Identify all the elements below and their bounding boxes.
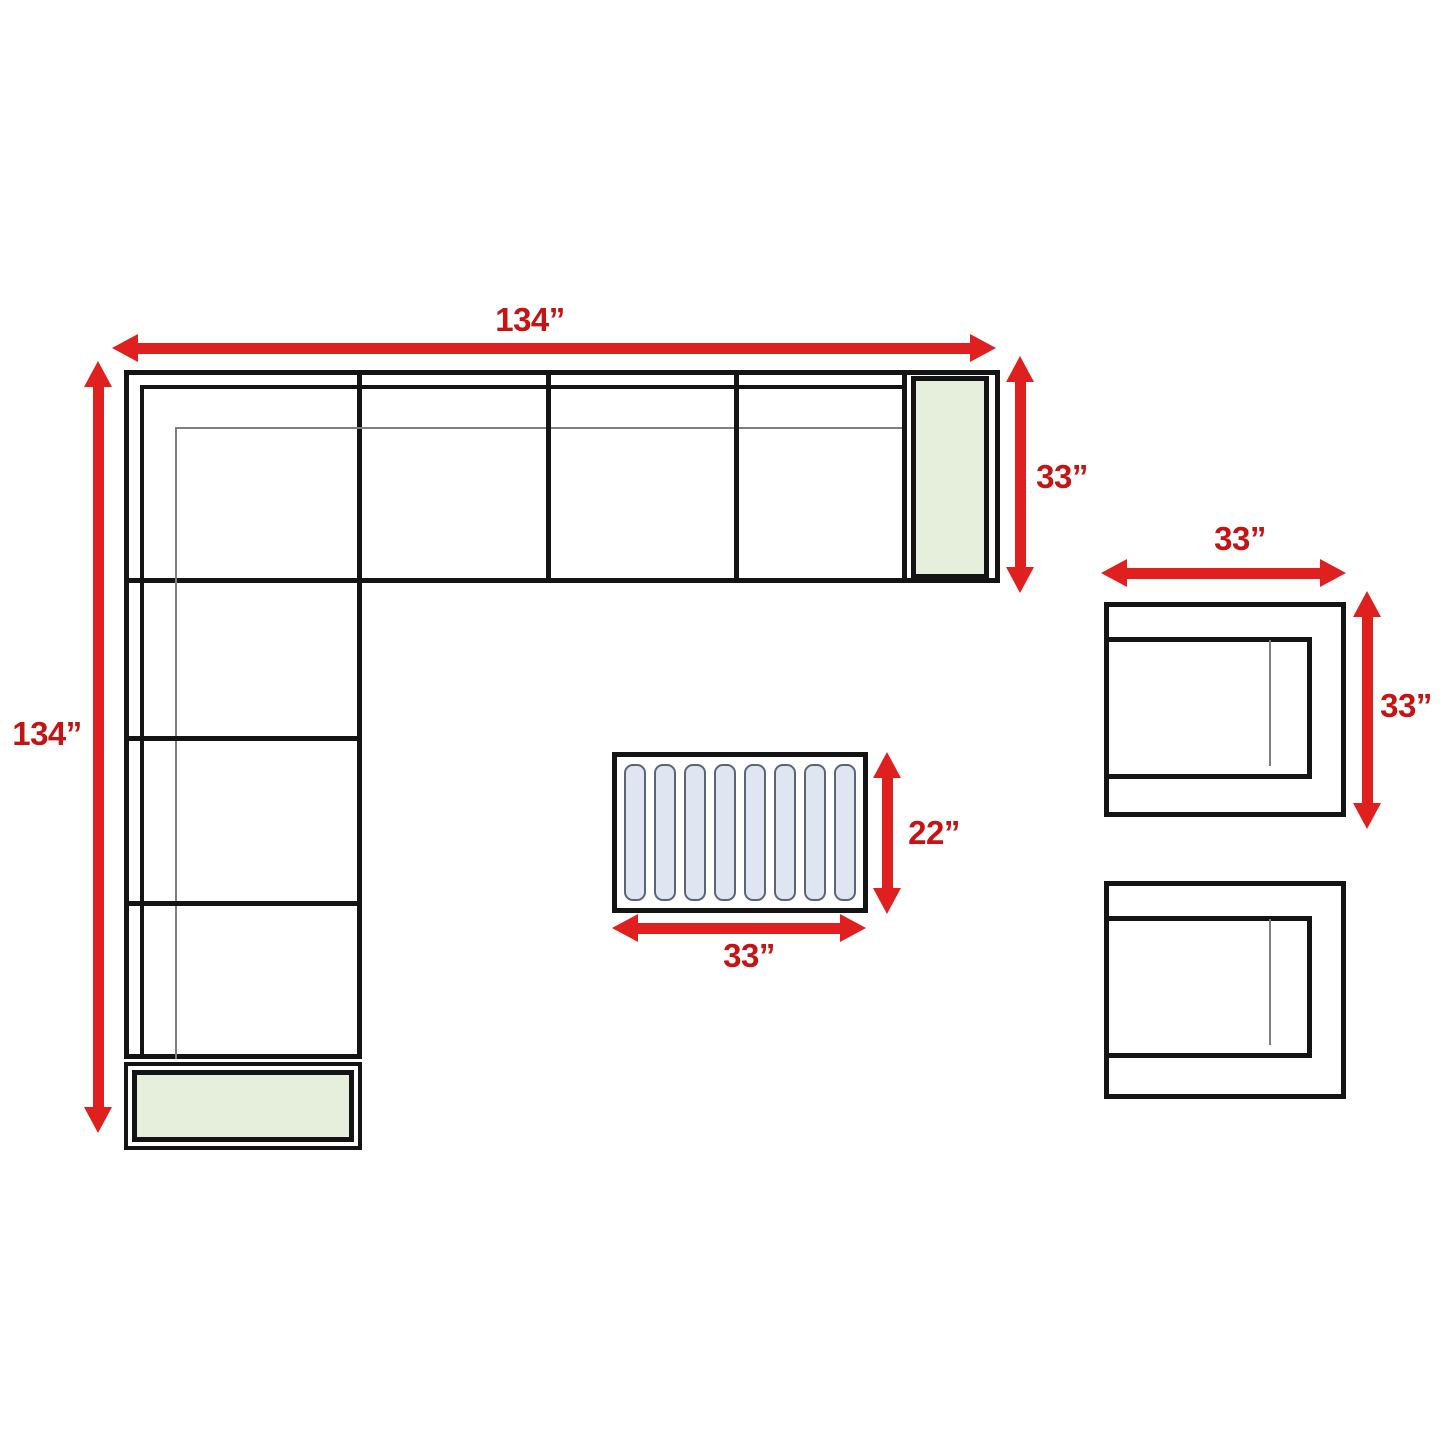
sofa-backrest-line-left xyxy=(140,385,144,1059)
dim-label-sofa-depth: 134” xyxy=(12,715,82,753)
chair-seat xyxy=(1104,916,1312,1058)
dim-label-table-width: 33” xyxy=(723,937,775,975)
arrow-head-down-icon xyxy=(1006,567,1034,593)
arrow-head-right-icon xyxy=(840,914,866,942)
chair-seat-crease xyxy=(1269,919,1271,1045)
table-slat xyxy=(774,764,796,901)
table-slat xyxy=(804,764,826,901)
arrow-head-right-icon xyxy=(1320,559,1346,587)
arrow-shaft xyxy=(1123,568,1324,579)
ottoman-cushion xyxy=(132,1070,354,1142)
dim-arrow-chair-width xyxy=(1101,559,1346,588)
arrow-shaft xyxy=(882,774,893,892)
arrow-head-right-icon xyxy=(970,334,996,362)
ottoman-frame xyxy=(124,1062,362,1150)
sofa-seat-divider xyxy=(546,370,551,583)
arrow-shaft xyxy=(93,383,104,1111)
table-slat xyxy=(834,764,856,901)
sofa-backrest-line-top xyxy=(142,385,905,389)
coffee-table xyxy=(612,752,868,913)
lounge-chair-bottom xyxy=(1104,881,1346,1099)
dim-label-sofa-width: 134” xyxy=(495,301,565,339)
sofa-arm-cushion xyxy=(911,376,989,579)
table-slat xyxy=(624,764,646,901)
arrow-shaft xyxy=(634,923,844,934)
dim-label-chair-width: 33” xyxy=(1214,520,1266,558)
table-slat xyxy=(744,764,766,901)
arrow-shaft xyxy=(1015,378,1026,571)
furniture-dimension-diagram: 134” 134” 33” 33” 33” 22” 33” xyxy=(0,0,1445,1445)
arrow-shaft xyxy=(134,343,974,354)
sectional-left-section xyxy=(124,370,362,1059)
sofa-seat-divider xyxy=(124,736,362,741)
dim-label-sofa-arm-depth: 33” xyxy=(1036,458,1088,496)
arrow-shaft xyxy=(1362,613,1373,807)
sofa-seat-divider xyxy=(734,370,739,583)
sofa-cushion-crease-top xyxy=(176,427,905,429)
lounge-chair-top xyxy=(1104,602,1346,817)
table-slat xyxy=(684,764,706,901)
table-slat xyxy=(654,764,676,901)
dim-label-chair-depth: 33” xyxy=(1380,687,1432,725)
table-slat xyxy=(714,764,736,901)
arrow-head-down-icon xyxy=(1353,803,1381,829)
dim-arrow-table-depth xyxy=(873,752,902,914)
chair-seat-crease xyxy=(1269,640,1271,766)
arrow-head-down-icon xyxy=(84,1107,112,1133)
dim-arrow-chair-depth xyxy=(1353,591,1382,829)
chair-seat xyxy=(1104,637,1312,779)
dim-label-table-depth: 22” xyxy=(908,814,960,852)
arrow-head-down-icon xyxy=(873,888,901,914)
sofa-seat-divider xyxy=(124,901,362,906)
sofa-cushion-crease-left xyxy=(175,427,177,1059)
dim-arrow-sofa-arm-depth xyxy=(1006,356,1035,593)
dim-arrow-sofa-depth xyxy=(84,361,113,1133)
sofa-seat-divider xyxy=(902,370,907,583)
